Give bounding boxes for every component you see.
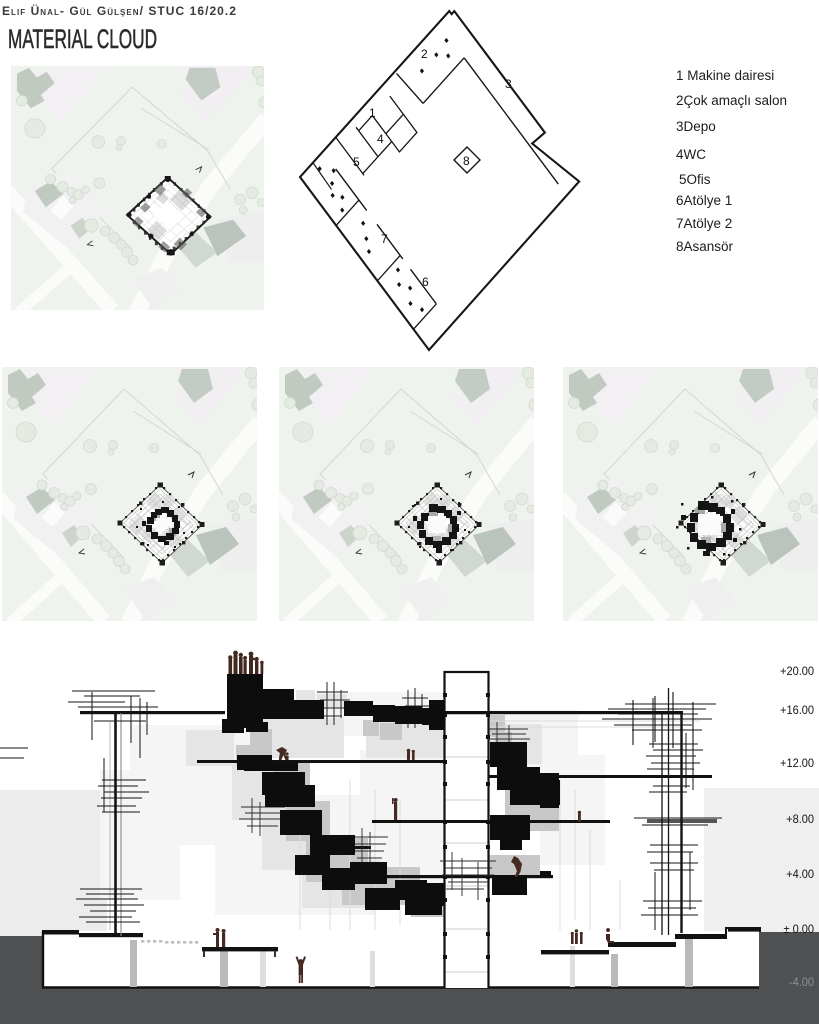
svg-text:MATERIAL CLOUD: MATERIAL CLOUD	[8, 24, 157, 54]
svg-text:+12.00: +12.00	[780, 758, 814, 770]
svg-text:3: 3	[505, 77, 512, 91]
svg-text:8: 8	[463, 154, 470, 168]
svg-text:+16.00: +16.00	[780, 705, 814, 717]
svg-text:2: 2	[421, 47, 428, 61]
svg-text:± 0.00: ± 0.00	[783, 924, 814, 936]
svg-text:4: 4	[377, 132, 384, 146]
svg-text:5: 5	[353, 155, 360, 169]
svg-text:-4.00: -4.00	[789, 977, 814, 989]
svg-text:+20.00: +20.00	[780, 666, 814, 678]
svg-text:6: 6	[422, 275, 429, 289]
svg-text:+8.00: +8.00	[786, 814, 814, 826]
svg-text:7: 7	[381, 232, 388, 246]
svg-text:+4.00: +4.00	[786, 869, 814, 881]
svg-text:1: 1	[369, 106, 376, 120]
